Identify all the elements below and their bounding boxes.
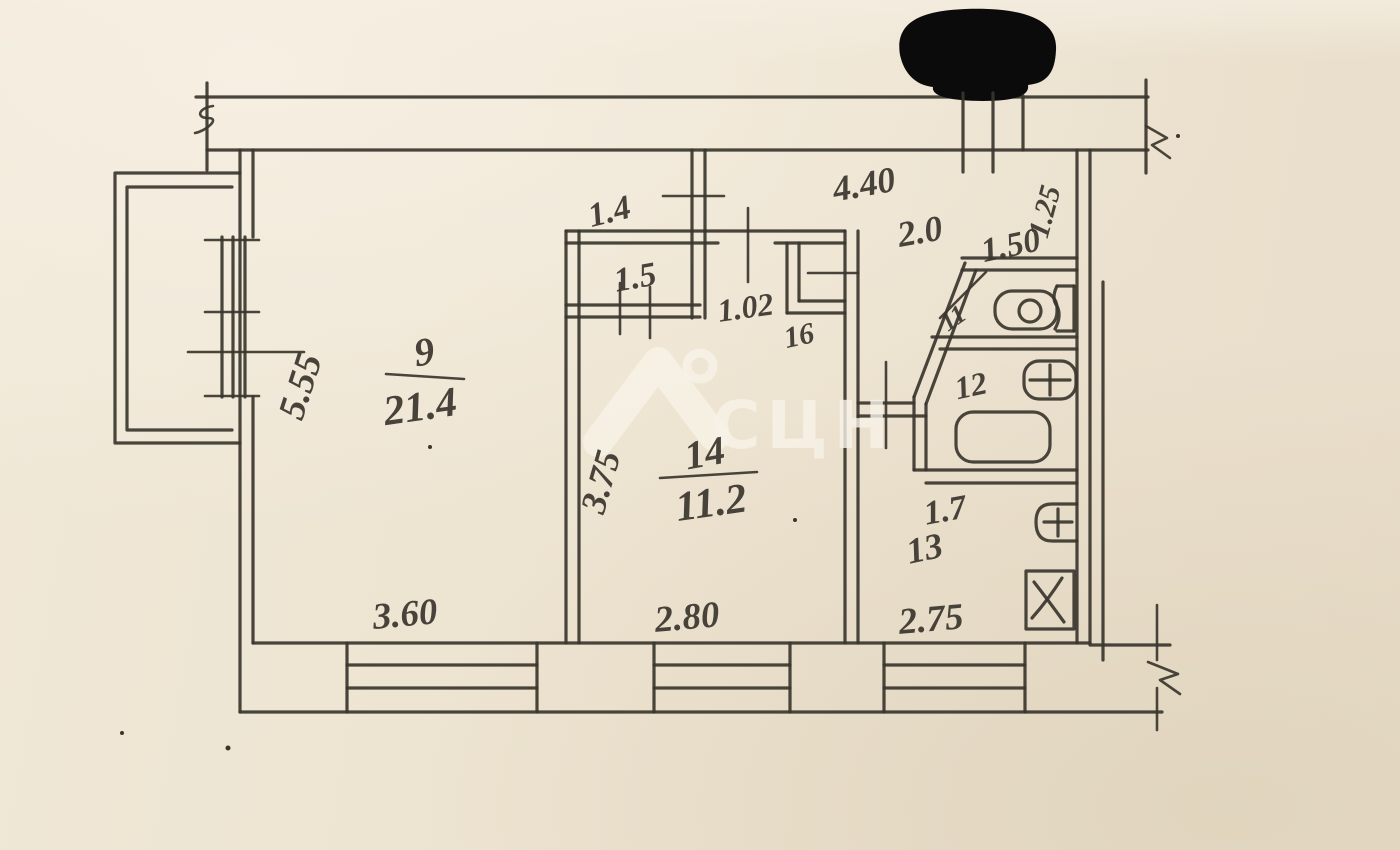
room-14-area-label: 11.2 — [673, 475, 750, 530]
dim-17-label: 1.7 — [921, 488, 971, 532]
room-12-label: 12 — [951, 364, 990, 406]
bathtub-icon — [956, 412, 1050, 462]
dim-360-label: 3.60 — [370, 591, 439, 638]
washbasin-icon — [1024, 361, 1076, 399]
dim-top-20-label: 2.0 — [893, 208, 945, 255]
dim-14-label: 1.4 — [584, 189, 634, 235]
dim-top-440-label: 4.40 — [828, 159, 898, 210]
floor-plan-drawing: СЦН 4.40 2.0 1.50 1.25 1.4 1.5 1.02 16 1… — [0, 0, 1400, 850]
watermark: СЦН — [598, 353, 895, 464]
room-9-number-label: 9 — [411, 328, 437, 375]
watermark-text: СЦН — [712, 387, 895, 464]
room-9-area-label: 21.4 — [380, 379, 460, 435]
window-bedroom — [654, 643, 790, 712]
dim-555-label: 5.55 — [270, 348, 330, 424]
dim-102-label: 1.02 — [715, 285, 775, 328]
toilet-icon — [995, 286, 1074, 331]
room-13-label: 13 — [903, 525, 947, 572]
window-kitchen — [884, 643, 1025, 712]
top-dimension-rail — [195, 80, 1180, 173]
room-14-number-label: 14 — [681, 427, 728, 478]
redaction-blob — [899, 9, 1056, 101]
room-16-label: 16 — [781, 316, 817, 355]
chimney-lines — [963, 93, 1023, 172]
dim-15-label: 1.5 — [611, 256, 659, 300]
dim-375-label: 3.75 — [572, 446, 628, 519]
kitchen-sink-icon — [1036, 504, 1077, 541]
dim-top-125-label: 1.25 — [1022, 182, 1067, 241]
stove-icon — [1026, 571, 1074, 629]
dim-275-label: 2.75 — [896, 596, 965, 643]
scanned-floor-plan-page: СЦН 4.40 2.0 1.50 1.25 1.4 1.5 1.02 16 1… — [0, 0, 1400, 850]
dim-280-label: 2.80 — [652, 594, 721, 641]
window-living — [347, 643, 537, 712]
